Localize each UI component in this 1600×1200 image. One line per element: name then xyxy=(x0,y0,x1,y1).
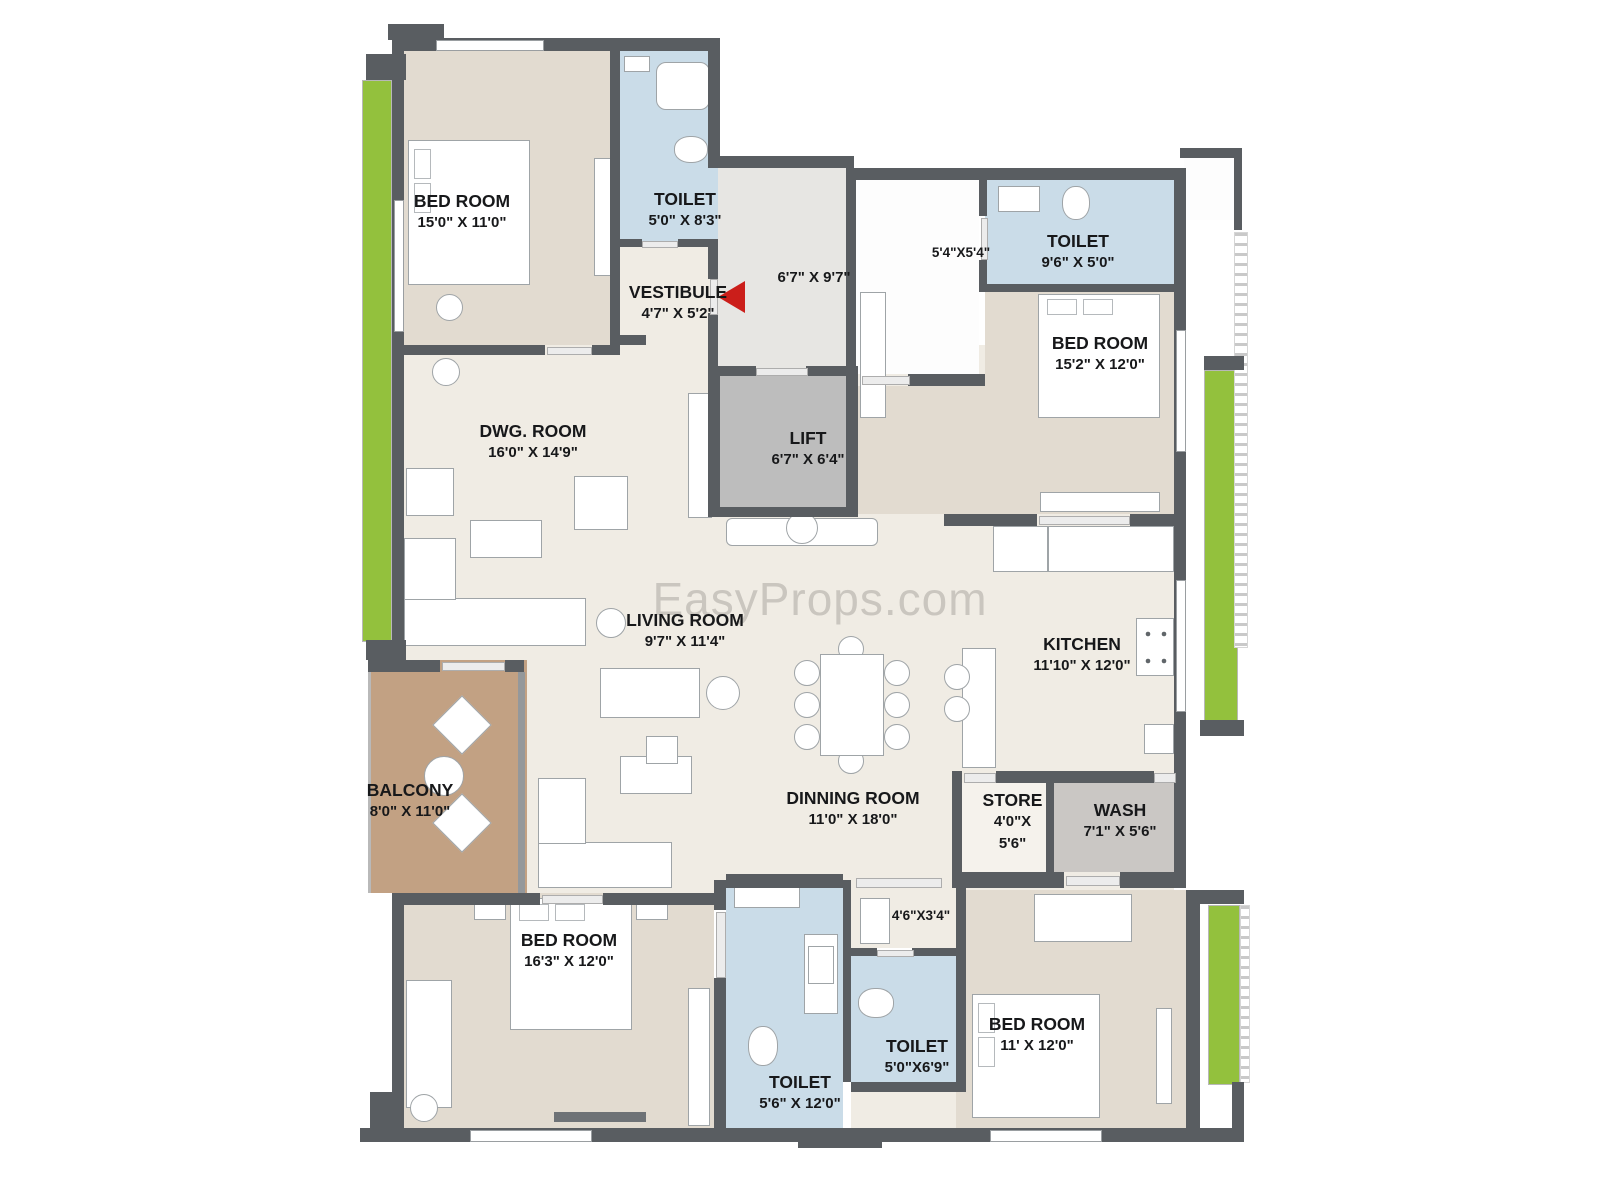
room-dims: 11' X 12'0" xyxy=(952,1035,1122,1057)
wall-segment xyxy=(1232,1082,1244,1128)
toilet-wc xyxy=(1062,186,1090,220)
room-dims: 11'0" X 18'0" xyxy=(768,809,938,831)
wall-segment xyxy=(850,168,1184,180)
room-name: BED ROOM xyxy=(952,1014,1122,1035)
room-dims: 16'0" X 14'9" xyxy=(448,442,618,464)
room-label-bedroom-2: BED ROOM 15'2" X 12'0" xyxy=(1015,333,1185,376)
room-dims: 11'10" X 12'0" xyxy=(997,655,1167,677)
planter-strip-left xyxy=(362,80,392,642)
room-dims: 15'0" X 11'0" xyxy=(377,212,547,234)
room-dims: 9'7" X 11'4" xyxy=(600,631,770,653)
wall-segment xyxy=(505,660,524,672)
door-balcony xyxy=(442,662,505,671)
wall-segment xyxy=(798,1128,882,1148)
wall-segment xyxy=(610,335,646,345)
wall-segment xyxy=(708,245,718,279)
room-name: LIFT xyxy=(723,428,893,449)
room-name: DINNING ROOM xyxy=(768,788,938,809)
room-label-entry-foyer: 6'7" X 9'7" xyxy=(729,267,899,289)
balcony-sliding-door xyxy=(518,672,525,893)
armchair xyxy=(406,468,454,516)
room-label-dining-room: DINNING ROOM 11'0" X 18'0" xyxy=(768,788,938,831)
side-table xyxy=(706,676,740,710)
toilet-wc xyxy=(858,988,894,1018)
dining-chair xyxy=(884,692,910,718)
dining-chair xyxy=(794,660,820,686)
dresser xyxy=(1040,492,1160,512)
window xyxy=(990,1130,1102,1142)
room-dims: 5'0" X 8'3" xyxy=(600,210,770,232)
door-toilet-4 xyxy=(877,950,914,957)
toilet-wc xyxy=(748,1026,778,1066)
door-bedroom-3 xyxy=(542,895,603,904)
door-lift xyxy=(756,368,808,376)
service-ledge-hatch xyxy=(1234,232,1248,648)
wall-segment xyxy=(366,640,406,660)
room-name: BED ROOM xyxy=(484,930,654,951)
wall-segment xyxy=(708,44,720,168)
room-dims: 5'6" X 12'0" xyxy=(715,1093,885,1115)
door-passage-bottom xyxy=(856,878,942,888)
tv-console xyxy=(1156,1008,1172,1104)
wall-segment xyxy=(392,893,404,1140)
door-toilet-3 xyxy=(716,912,726,978)
wall-segment xyxy=(368,660,440,672)
wall-segment xyxy=(912,948,956,956)
wall-segment xyxy=(952,872,1064,888)
door-bedroom-1 xyxy=(547,347,592,355)
wall-segment xyxy=(392,38,404,672)
tv-panel xyxy=(554,1112,646,1122)
room-label-passage-bottom: 4'6"X3'4" xyxy=(836,906,1006,926)
room-label-living-room: LIVING ROOM 9'7" X 11'4" xyxy=(600,610,770,653)
room-dims: 7'1" X 5'6" xyxy=(1045,821,1195,843)
side-table xyxy=(646,736,678,764)
wall-segment xyxy=(708,366,720,517)
room-label-lift: LIFT 6'7" X 6'4" xyxy=(723,428,893,471)
stool xyxy=(410,1094,438,1122)
room-dims: 15'2" X 12'0" xyxy=(1015,354,1185,376)
room-label-balcony: BALCONY 8'0" X 11'0" xyxy=(340,780,480,823)
duct-shaft xyxy=(1184,158,1234,220)
door-bedroom-4 xyxy=(1066,876,1120,886)
room-dims: 9'6" X 5'0" xyxy=(993,252,1163,274)
stool xyxy=(944,696,970,722)
kitchen-sink xyxy=(1144,724,1174,754)
room-name: TOILET xyxy=(600,189,770,210)
wall-segment xyxy=(944,514,1037,526)
room-dims: 4'7" X 5'2" xyxy=(598,303,758,325)
wall-segment xyxy=(952,771,962,888)
wall-segment xyxy=(1186,890,1200,1128)
window xyxy=(436,40,544,51)
room-name: BALCONY xyxy=(340,780,480,801)
wall-segment xyxy=(603,893,714,905)
armchair xyxy=(574,476,628,530)
wall-segment xyxy=(592,345,620,355)
floor-plan: BED ROOM 15'0" X 11'0" TOILET 5'0" X 8'3… xyxy=(0,0,1600,1200)
wall-segment xyxy=(714,880,726,910)
room-dims: 5'0"X6'9" xyxy=(832,1057,1002,1079)
sofa xyxy=(600,668,700,718)
service-ledge-hatch-bottom xyxy=(1240,905,1250,1083)
dining-chair xyxy=(884,724,910,750)
sofa xyxy=(404,598,586,646)
room-dims: 6'7" X 9'7" xyxy=(729,267,899,289)
wall-segment xyxy=(1234,148,1242,230)
door-toilet-1 xyxy=(642,241,678,248)
dining-chair xyxy=(794,724,820,750)
wall-segment xyxy=(404,345,545,355)
wall-segment xyxy=(1120,872,1186,888)
toilet-wc xyxy=(674,136,708,163)
coffee-table xyxy=(470,520,542,558)
room-dims: 4'6"X3'4" xyxy=(836,906,1006,926)
planter-strip-right-top xyxy=(1204,370,1238,722)
wall-segment xyxy=(851,948,877,956)
wall-segment xyxy=(708,156,854,168)
wall-segment xyxy=(806,366,858,376)
wall-segment xyxy=(1204,356,1244,370)
refrigerator xyxy=(993,526,1048,572)
sofa xyxy=(538,842,672,888)
room-name: DWG. ROOM xyxy=(448,421,618,442)
washbasin xyxy=(998,186,1040,212)
wall-segment xyxy=(996,771,1154,783)
wardrobe xyxy=(860,292,886,418)
room-name: WASH xyxy=(1045,800,1195,821)
wardrobe xyxy=(1034,894,1132,942)
door-store xyxy=(964,773,996,783)
room-name: LIVING ROOM xyxy=(600,610,770,631)
room-label-toilet-1: TOILET 5'0" X 8'3" xyxy=(600,189,770,232)
room-dims: 8'0" X 11'0" xyxy=(340,801,480,823)
wall-segment xyxy=(979,168,987,216)
sofa xyxy=(406,980,452,1108)
door-bedroom-2-passage xyxy=(862,376,910,385)
wall-segment xyxy=(708,507,858,517)
planter-strip-right-bottom xyxy=(1208,905,1240,1085)
room-dims: 16'3" X 12'0" xyxy=(484,951,654,973)
door-wash xyxy=(1154,773,1176,783)
wall-segment xyxy=(610,239,642,247)
room-label-bedroom-4: BED ROOM 11' X 12'0" xyxy=(952,1014,1122,1057)
room-dims: 6'7" X 6'4" xyxy=(723,449,893,471)
dining-chair xyxy=(884,660,910,686)
door-bedroom-2 xyxy=(1039,516,1130,525)
bathtub xyxy=(656,62,710,110)
wall-segment xyxy=(366,54,406,80)
washbasin xyxy=(624,56,650,72)
window xyxy=(1176,580,1186,712)
room-label-kitchen: KITCHEN 11'10" X 12'0" xyxy=(997,634,1167,677)
room-label-toilet-2: TOILET 9'6" X 5'0" xyxy=(993,231,1163,274)
room-name: KITCHEN xyxy=(997,634,1167,655)
washbasin xyxy=(808,946,834,984)
wall-segment xyxy=(1180,148,1242,158)
room-label-wash: WASH 7'1" X 5'6" xyxy=(1045,800,1195,843)
wall-segment xyxy=(1196,890,1244,904)
sofa xyxy=(538,778,586,844)
window xyxy=(470,1130,592,1142)
stool xyxy=(944,664,970,690)
wall-segment xyxy=(726,874,843,888)
room-label-dwg-room: DWG. ROOM 16'0" X 14'9" xyxy=(448,421,618,464)
room-label-bedroom-1: BED ROOM 15'0" X 11'0" xyxy=(377,191,547,234)
room-label-bedroom-3: BED ROOM 16'3" X 12'0" xyxy=(484,930,654,973)
wall-segment xyxy=(1200,720,1244,736)
wall-segment xyxy=(708,366,756,376)
room-name: BED ROOM xyxy=(1015,333,1185,354)
room-name: BED ROOM xyxy=(377,191,547,212)
wardrobe xyxy=(688,988,710,1126)
wall-segment xyxy=(908,374,985,386)
dining-chair xyxy=(794,692,820,718)
stool xyxy=(436,294,463,321)
dining-table xyxy=(820,654,884,756)
kitchen-counter xyxy=(1048,526,1174,572)
wall-segment xyxy=(404,893,540,905)
sofa xyxy=(404,538,456,600)
wall-segment xyxy=(985,284,1174,292)
stool xyxy=(432,358,460,386)
room-name: TOILET xyxy=(993,231,1163,252)
